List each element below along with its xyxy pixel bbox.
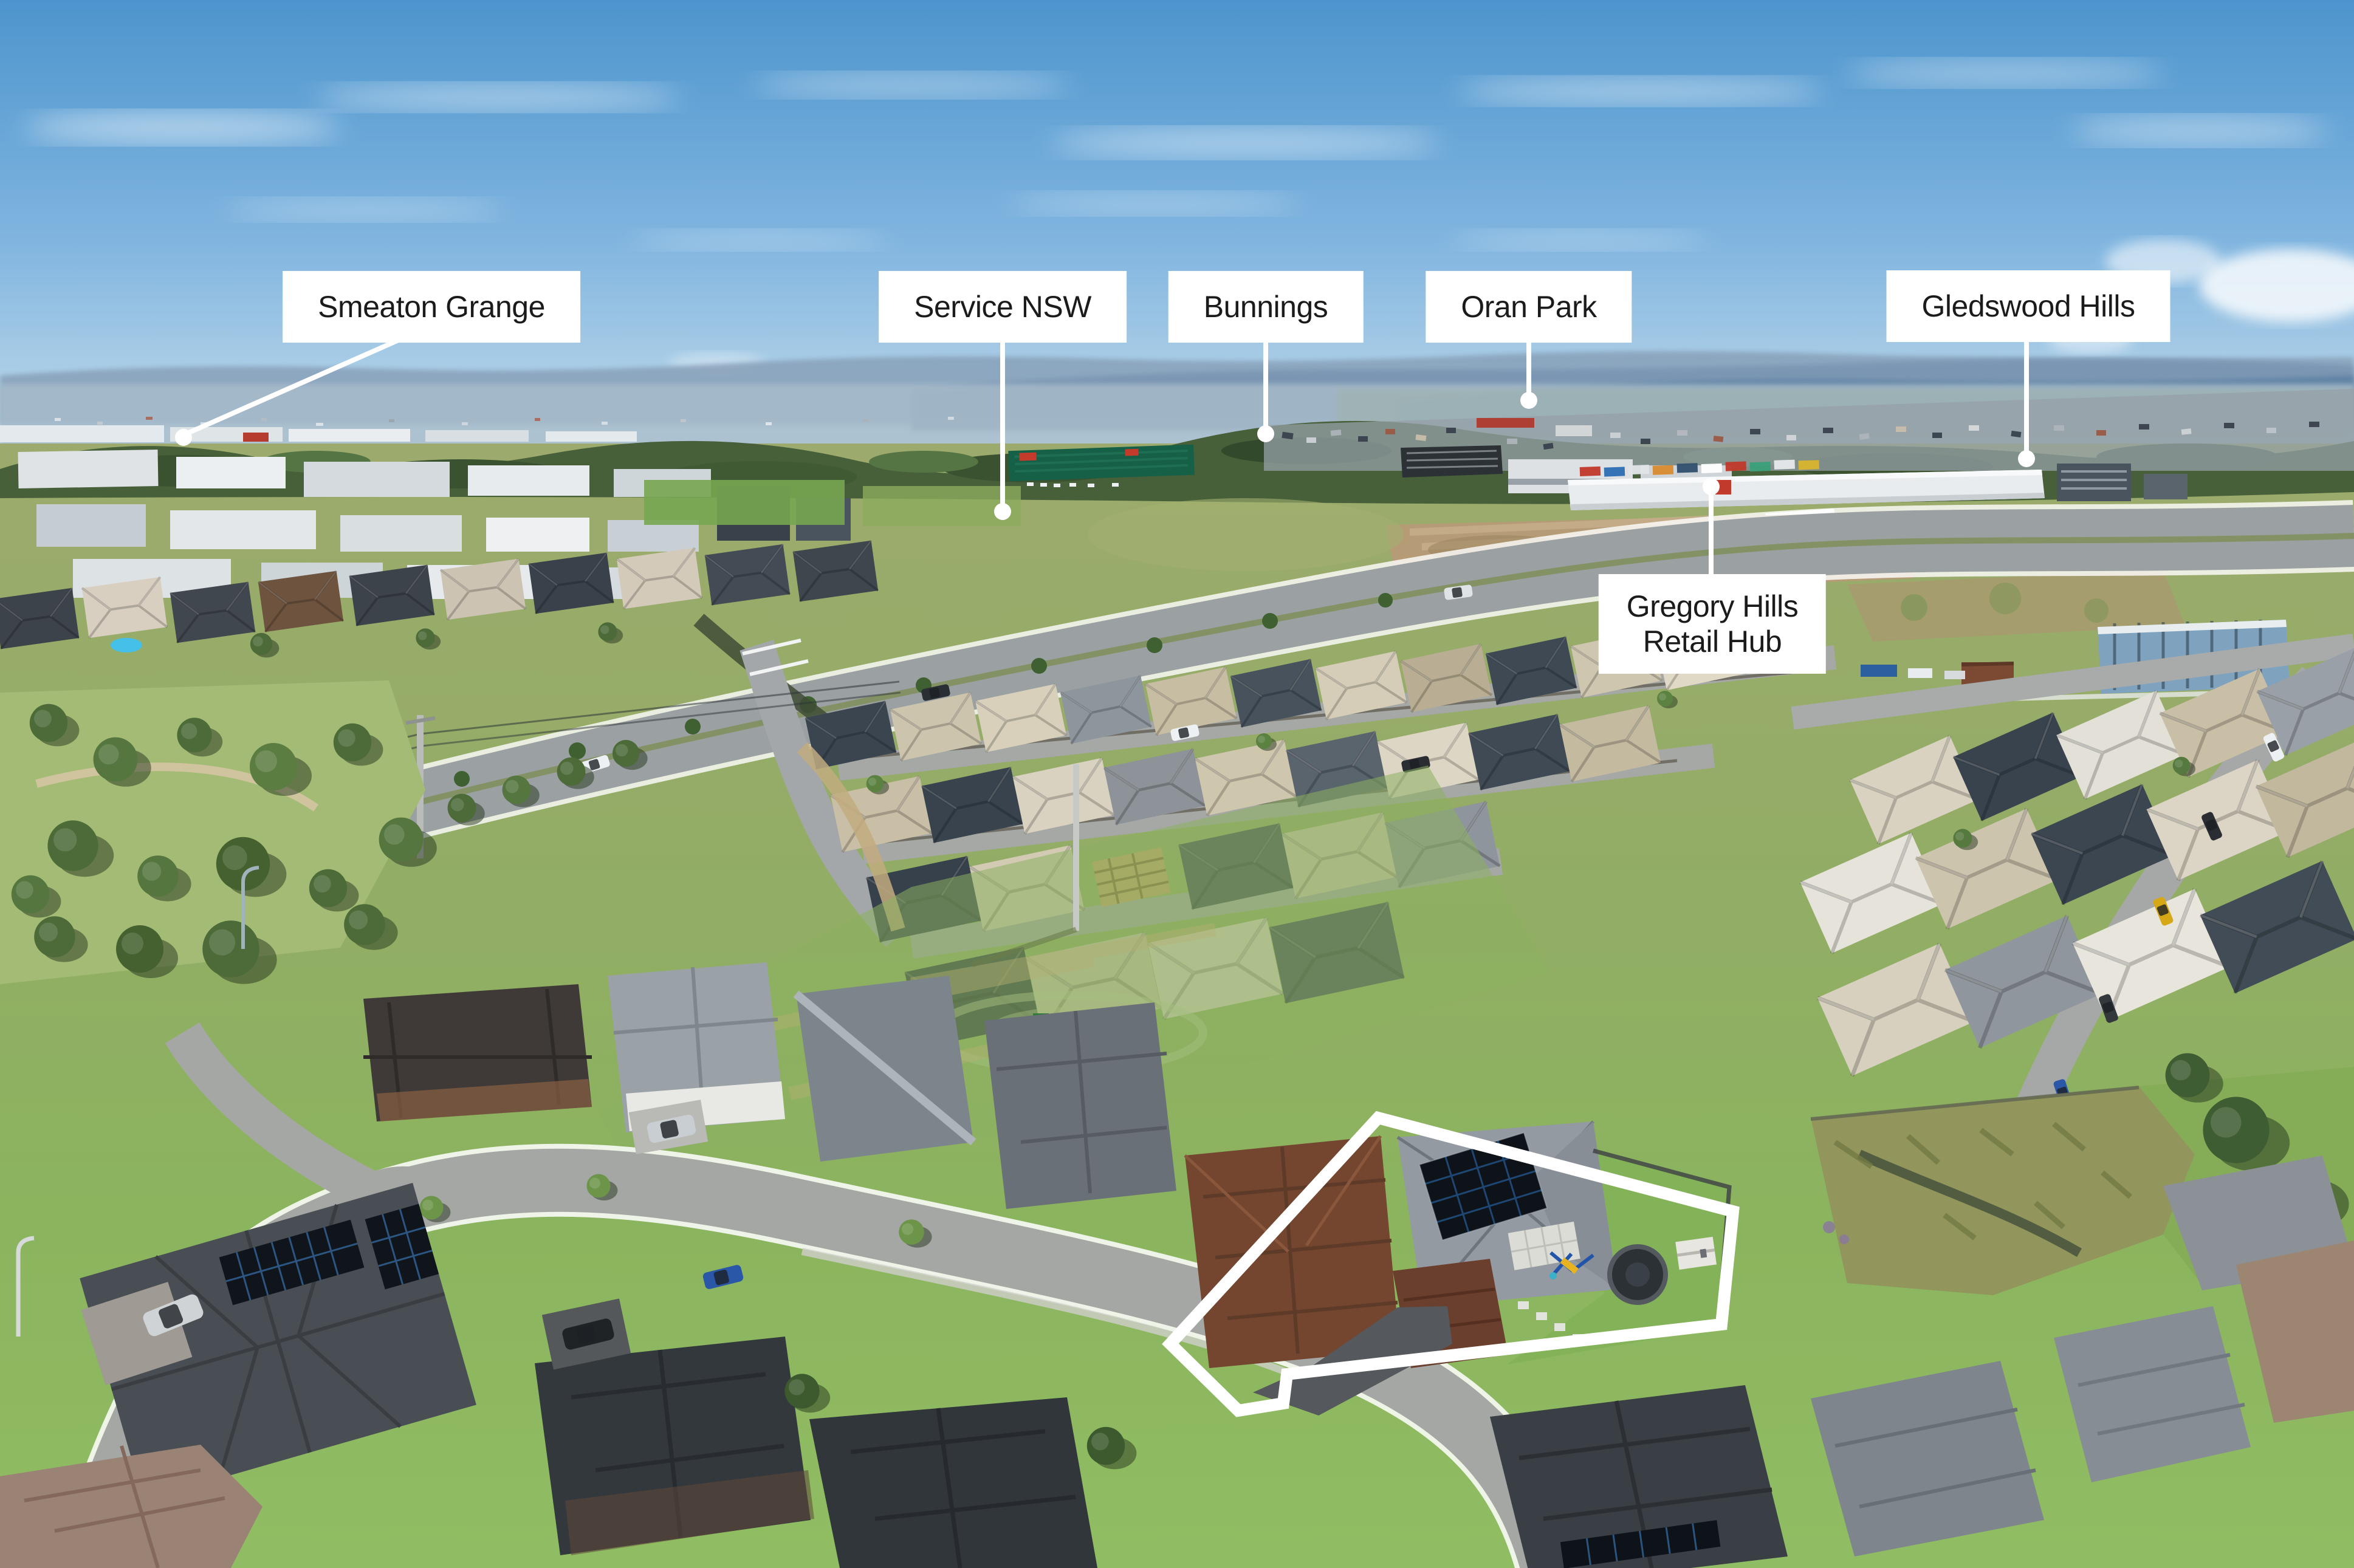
aerial-photograph (0, 0, 2354, 1568)
brick-mansion (535, 1337, 814, 1555)
trampoline (1610, 1247, 1666, 1303)
location-label-text: Bunnings (1204, 290, 1328, 324)
location-label-text-line2: Retail Hub (1627, 624, 1798, 659)
gray-roof-house (984, 1002, 1176, 1209)
location-dot-smeaton-grange (175, 429, 192, 446)
location-label-service-nsw: Service NSW (879, 271, 1127, 343)
location-dot-gledswood-hills (2018, 450, 2035, 467)
location-label-bunnings: Bunnings (1168, 271, 1364, 343)
location-label-gledswood-hills: Gledswood Hills (1887, 270, 2170, 342)
location-label-oran-park: Oran Park (1426, 271, 1632, 343)
location-label-gregory-hills-retail-hub: Gregory Hills Retail Hub (1599, 574, 1826, 674)
backyard-pool (111, 638, 142, 652)
location-label-text: Gledswood Hills (1922, 289, 2135, 323)
modern-house (796, 976, 973, 1162)
brick-mansion (809, 1397, 1097, 1568)
location-label-text: Smeaton Grange (318, 290, 545, 324)
location-dot-bunnings (1257, 425, 1274, 442)
bunnings-warehouse (1008, 445, 1195, 482)
location-label-smeaton-grange: Smeaton Grange (283, 271, 580, 343)
power-pole (1073, 764, 1079, 931)
aerial-photo-scene: Smeaton Grange Service NSW Bunnings Oran… (0, 0, 2354, 1568)
brown-mansion (363, 984, 592, 1121)
location-dot-gregory-hills (1703, 478, 1720, 495)
location-label-text: Oran Park (1461, 290, 1596, 324)
location-dot-service-nsw (994, 503, 1011, 520)
location-label-text: Service NSW (914, 290, 1091, 324)
cubby-house (1675, 1237, 1717, 1270)
location-dot-oran-park (1520, 392, 1537, 409)
location-label-text-line1: Gregory Hills (1627, 589, 1798, 624)
